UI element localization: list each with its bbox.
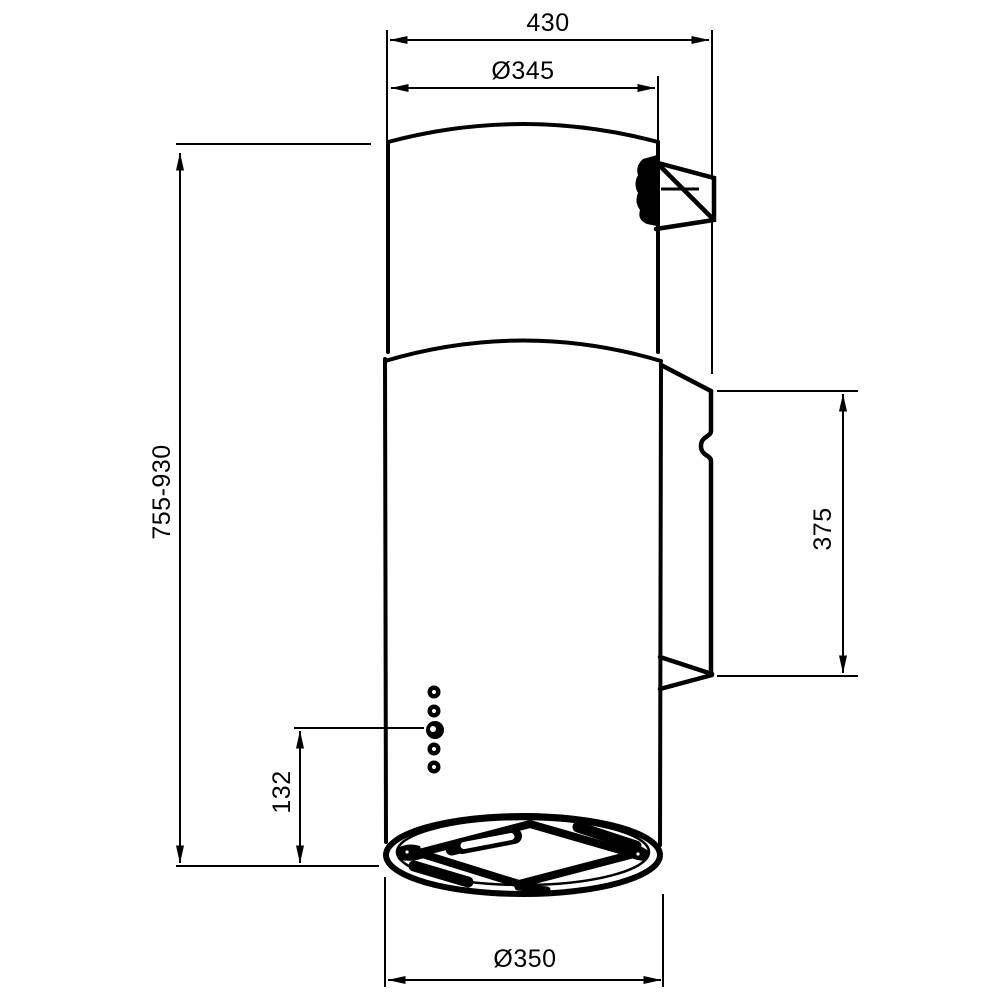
- body-top-rim-arc: [385, 341, 661, 362]
- button-highlight-3: [430, 726, 436, 732]
- lower-bracket-right-edge-with-keyhole: [701, 391, 711, 673]
- chimney-section-outline: [388, 124, 658, 352]
- body-right-edge: [660, 364, 661, 845]
- label-bracket-height: 375: [809, 507, 837, 550]
- top-bracket-diagonal: [659, 165, 712, 218]
- bottom-face-assembly: [386, 816, 660, 894]
- top-wall-bracket: [636, 155, 715, 374]
- filter-left-pin-dot: [405, 850, 408, 853]
- label-height-range: 755-930: [148, 444, 176, 539]
- button-highlight-2: [432, 709, 436, 713]
- technical-drawing-page: 430 Ø345 755-930 132 375 Ø350: [0, 0, 1000, 1000]
- lower-bracket-bottom-hook: [660, 657, 712, 689]
- lower-bracket-top-edge: [661, 365, 711, 391]
- hood-body: [385, 124, 661, 845]
- cooker-hood-dimension-drawing: 430 Ø345 755-930 132 375 Ø350: [0, 0, 1000, 1000]
- button-highlight-5: [432, 765, 436, 769]
- filter-right-pin-dot: [636, 852, 639, 855]
- button-highlight-1: [432, 690, 436, 694]
- control-buttons: [426, 686, 444, 774]
- body-left-edge: [385, 359, 386, 842]
- label-body-diameter: Ø350: [493, 945, 556, 973]
- label-controls-offset: 132: [268, 770, 296, 813]
- lower-wall-bracket: [660, 365, 712, 689]
- button-highlight-4: [432, 747, 436, 751]
- label-overall-width: 430: [526, 9, 569, 37]
- filter-slot-bottom-center: [518, 887, 547, 890]
- label-top-diameter: Ø345: [491, 57, 554, 85]
- top-bracket-section-hatch: [636, 155, 658, 226]
